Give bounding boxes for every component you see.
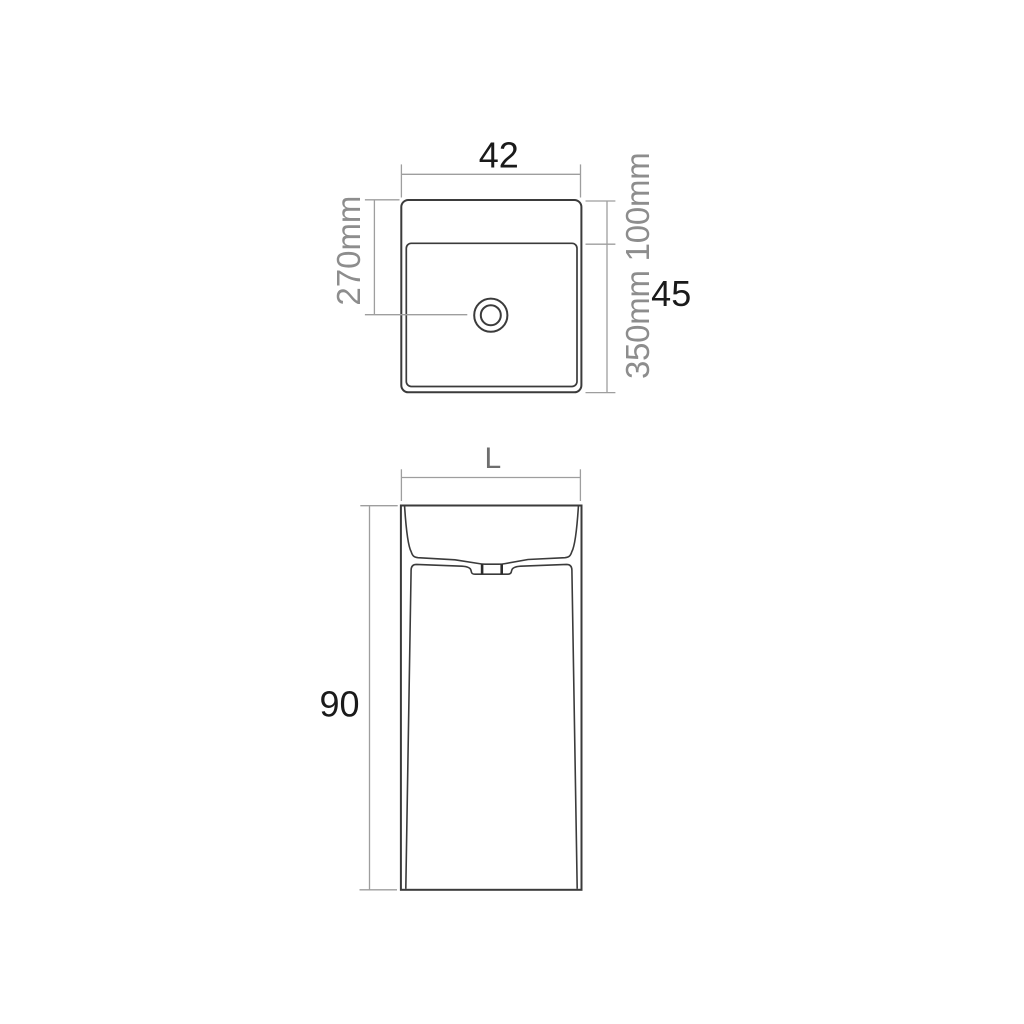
svg-text:42: 42 [479,135,519,176]
svg-text:45: 45 [651,273,691,314]
svg-text:90: 90 [319,683,359,724]
svg-text:350mm 100mm: 350mm 100mm [619,153,656,380]
svg-text:270mm: 270mm [330,196,367,306]
svg-text:L: L [484,442,501,475]
